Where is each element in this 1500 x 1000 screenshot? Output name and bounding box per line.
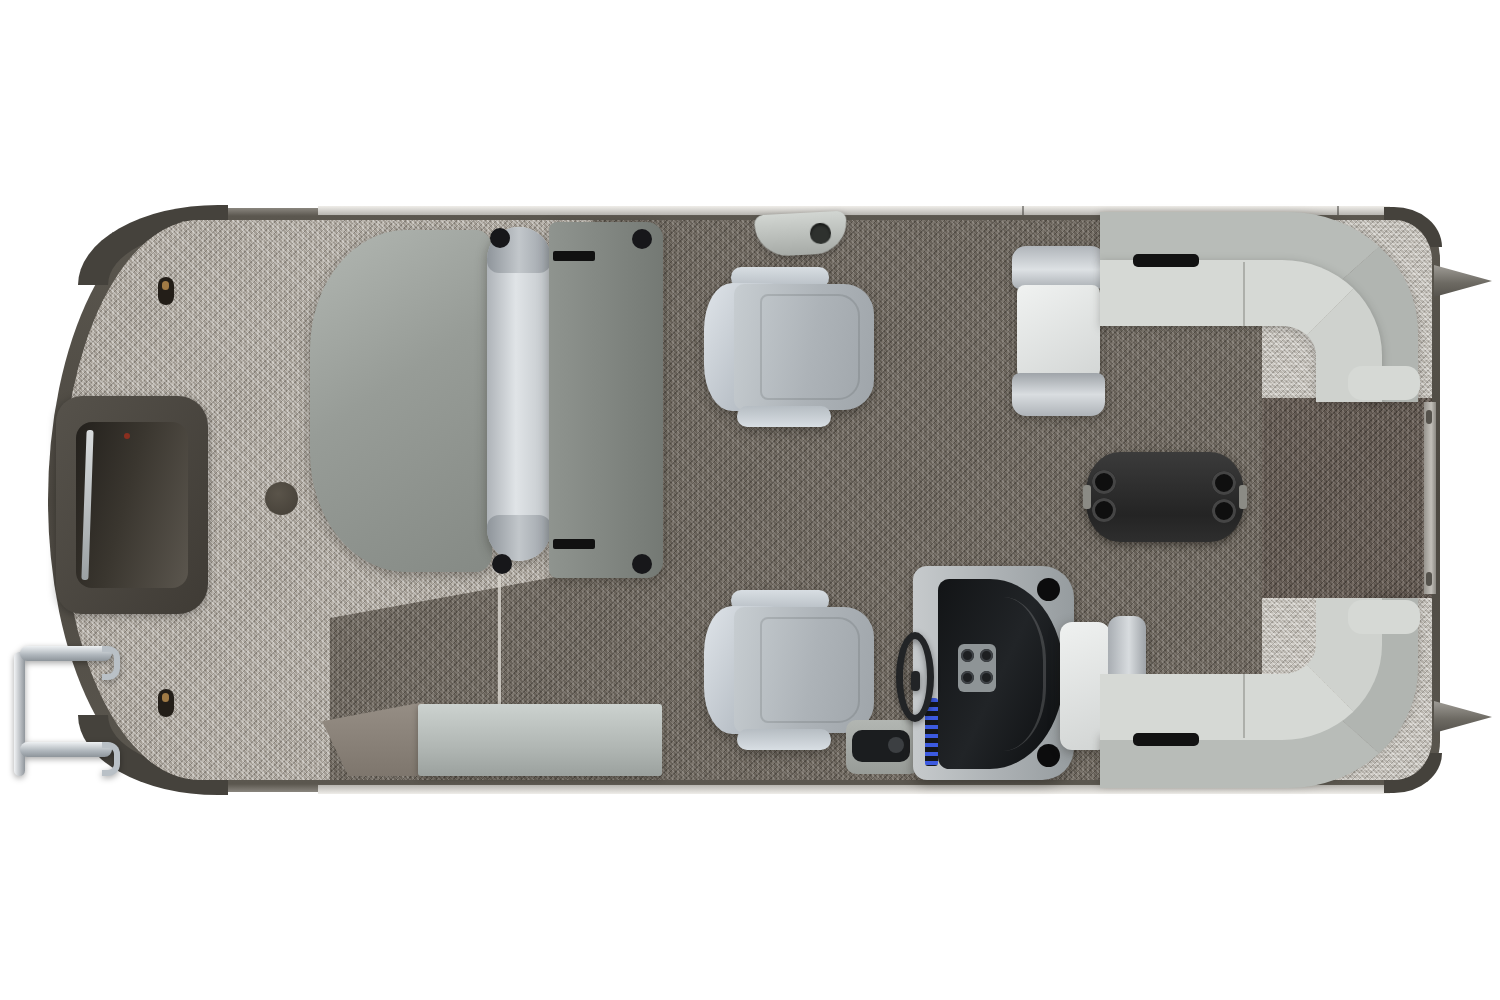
rail-joint <box>1022 206 1024 215</box>
lounger-bolt <box>632 554 652 574</box>
aft-lounger-bolster <box>487 227 551 561</box>
stern-gate-latch <box>124 433 130 439</box>
storage-bench-box <box>418 704 662 776</box>
ladder-rail <box>14 652 25 776</box>
chair-armrest <box>737 729 831 750</box>
table-edge-trim <box>1083 485 1091 509</box>
nose-cone-port <box>1434 262 1492 300</box>
lounge-grab-handle <box>1133 733 1199 746</box>
ladder-arm <box>20 646 112 661</box>
cushion-seam <box>1243 674 1245 738</box>
nose-cone-starboard <box>1434 698 1492 736</box>
gauge-dial <box>980 671 993 684</box>
starboard-bow-lounge-seat <box>1100 598 1382 740</box>
port-bow-chaise <box>1012 246 1105 416</box>
cup-holder <box>1092 470 1116 494</box>
aft-lounger-seat-deck <box>549 222 663 578</box>
lounger-hinge <box>553 539 595 549</box>
lounge-grab-handle <box>1133 254 1199 267</box>
chaise-bolster <box>1012 373 1105 416</box>
bow-gate <box>1424 402 1436 594</box>
deck-seam <box>498 576 501 706</box>
cocktail-table <box>1086 452 1244 542</box>
deck-keyhole-fitting <box>158 689 174 717</box>
cup-holder <box>1212 471 1236 495</box>
gauge-dial <box>961 649 974 662</box>
helm-console <box>846 566 1082 782</box>
gauge-dial <box>980 649 993 662</box>
chaise-seat <box>1017 285 1100 378</box>
cushion-seam <box>1243 262 1245 326</box>
cleat-hole <box>809 222 831 244</box>
console-bolt <box>1037 578 1060 601</box>
port-swivel-chair <box>704 266 876 428</box>
ladder-hook <box>102 742 120 776</box>
lounger-bolt <box>490 228 510 248</box>
gauge-cluster <box>958 644 996 692</box>
lounger-bolt <box>492 554 512 574</box>
table-base-mount <box>265 482 298 515</box>
chair-armrest <box>737 406 831 427</box>
boat-floorplan-render <box>0 0 1500 1000</box>
aft-lounger-backrest <box>310 230 492 572</box>
throttle-lever <box>852 730 910 762</box>
cup-holder <box>1212 499 1236 523</box>
port-bow-lounge-seat <box>1100 260 1382 402</box>
lounger-bolt <box>632 229 652 249</box>
boarding-ladder <box>14 638 122 790</box>
console-bolt <box>1037 744 1060 767</box>
gauge-dial <box>961 671 974 684</box>
rail-joint <box>1337 206 1339 215</box>
table-edge-trim <box>1239 485 1247 509</box>
chair-seat <box>734 284 874 410</box>
cup-holder <box>1092 498 1116 522</box>
chaise-bolster <box>1012 246 1105 289</box>
steering-wheel <box>896 632 934 722</box>
ladder-hook <box>102 646 120 680</box>
deck-keyhole-fitting <box>158 277 174 305</box>
lounger-hinge <box>553 251 595 261</box>
port-bow-lounge-end-cushion <box>1348 366 1420 400</box>
starboard-bow-lounge-end-cushion <box>1348 600 1420 634</box>
bow-walkway-carpet <box>1262 398 1432 598</box>
ladder-arm <box>20 742 112 757</box>
